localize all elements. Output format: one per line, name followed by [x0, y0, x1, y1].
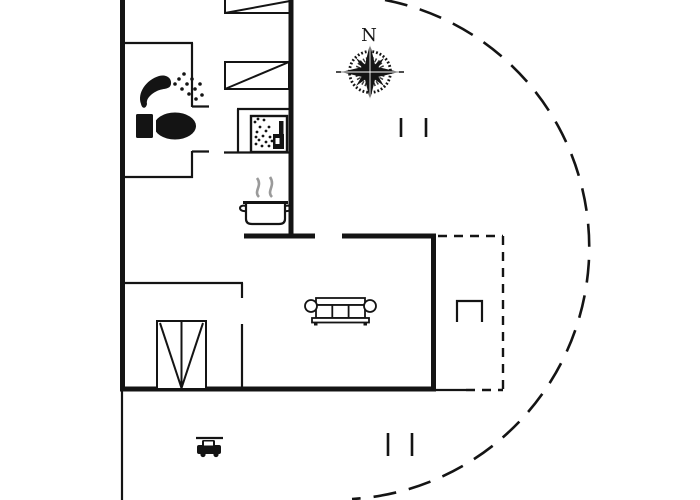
- floor-plan: N: [0, 0, 700, 500]
- wardrobe-double-door-icon: [157, 321, 206, 389]
- beds: [225, 0, 290, 89]
- steam-icon: [257, 177, 272, 197]
- cooking-pot-icon: [240, 177, 291, 224]
- car-icon: [196, 438, 223, 457]
- shower-spray-dots: [173, 72, 204, 101]
- plot-boundary-arc: [352, 0, 589, 499]
- floor-plan-drawing: [0, 0, 700, 500]
- sofa-icon: [305, 298, 376, 326]
- compass-rose: [336, 44, 404, 100]
- toilet-icon: [136, 113, 196, 140]
- window-tick-marks-bottom: [388, 433, 412, 456]
- compass-north-label: N: [358, 25, 380, 46]
- terrace-dashed-outline: [438, 236, 503, 390]
- single-bed-icon-2: [225, 62, 289, 89]
- single-bed-icon-1: [225, 0, 290, 13]
- garden-bench-icon: [457, 301, 482, 322]
- window-tick-marks-top: [401, 118, 426, 137]
- shower-icon: [140, 72, 204, 108]
- wood-stove-icon: [251, 116, 287, 152]
